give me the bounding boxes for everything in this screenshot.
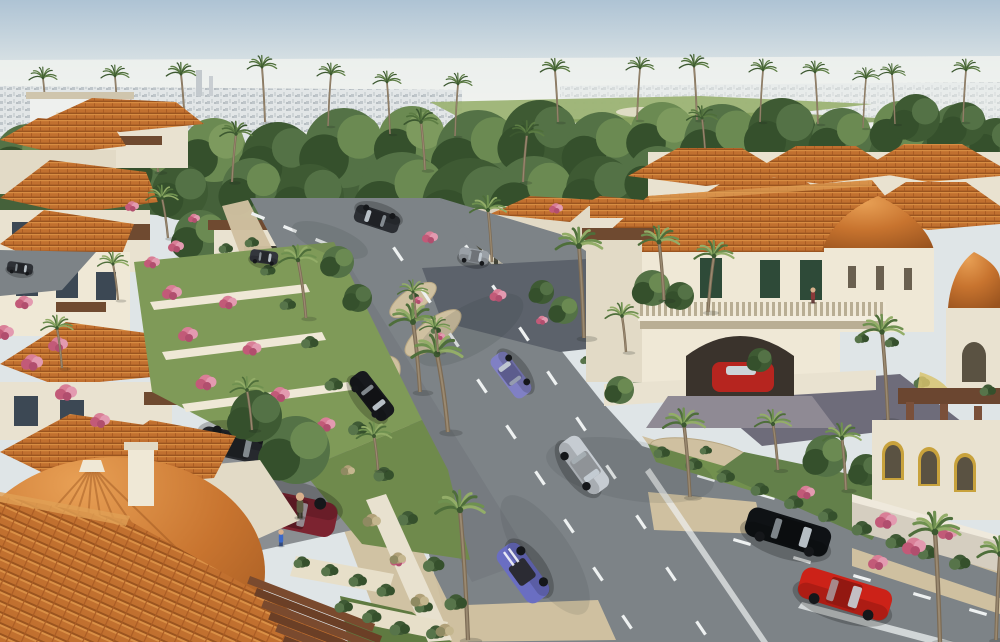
right-arch-window-1: [885, 445, 901, 478]
bougainvillea-bloom: [249, 348, 257, 356]
shrub-b: [751, 486, 761, 496]
palm-shadow: [413, 390, 434, 396]
tree-light: [335, 249, 353, 267]
person-shadow: [277, 545, 284, 548]
palm-core: [114, 75, 117, 78]
palm-core: [55, 326, 58, 329]
palm-core: [657, 240, 662, 245]
palm-core: [486, 208, 490, 212]
shrub-b: [362, 613, 372, 623]
shrub-b: [852, 525, 863, 536]
right-arch-window-3: [957, 457, 973, 490]
shrub-c: [662, 449, 670, 457]
shrub-b: [717, 473, 727, 483]
shrub-c: [398, 555, 406, 563]
palm-core: [762, 69, 765, 72]
bougainvillea-bloom: [875, 562, 883, 570]
shrub-b: [390, 625, 401, 636]
palm-shadow: [249, 429, 262, 433]
left-villa-5-awning: [56, 302, 106, 312]
palm-shadow: [389, 134, 398, 137]
palm-core: [814, 71, 817, 74]
shrub-b: [377, 587, 387, 597]
palm-shadow: [703, 311, 719, 316]
shrub-c: [288, 301, 296, 309]
shrub-c: [420, 596, 429, 605]
city-tower-a: [196, 70, 202, 96]
bougainvillea-bloom: [21, 302, 28, 309]
palm-core: [457, 83, 460, 86]
palm-core: [386, 81, 389, 84]
shrub-c: [862, 335, 869, 342]
shrub-c: [386, 586, 395, 595]
palm-core: [932, 529, 939, 536]
big-villa-shutter-window-2: [760, 260, 780, 298]
palm-core: [525, 132, 529, 136]
shrub-b: [818, 512, 828, 522]
palm-frond: [842, 436, 861, 440]
shrub-b: [245, 240, 253, 248]
palm-core: [419, 120, 423, 124]
shrub-c: [862, 524, 872, 534]
palm-core: [681, 422, 686, 427]
palm-core: [433, 326, 436, 329]
bougainvillea-bloom: [225, 302, 232, 309]
bougainvillea-bloom: [150, 262, 156, 268]
shrub-b: [980, 387, 989, 396]
bougainvillea-bloom: [910, 546, 920, 556]
palm-core: [693, 65, 696, 68]
shrub-c: [358, 576, 367, 585]
palm-shadow: [759, 122, 768, 125]
person-head: [278, 529, 283, 534]
shrub-c: [456, 598, 467, 609]
palm-shadow: [841, 489, 856, 493]
shrub-b: [784, 499, 794, 509]
palm-core: [160, 196, 163, 199]
palm-core: [879, 329, 884, 334]
shrub-b: [341, 468, 349, 476]
palm-shadow: [374, 469, 388, 473]
palm-core: [891, 73, 893, 75]
shrub-c: [434, 560, 445, 571]
person-body: [279, 534, 283, 543]
palm-core: [576, 243, 582, 249]
shrub-b: [426, 629, 436, 639]
shrub-b: [855, 336, 863, 344]
shrub-c: [694, 461, 703, 470]
bougainvillea-bloom: [417, 300, 421, 304]
chimney: [128, 446, 154, 506]
shrub-c: [828, 511, 838, 521]
palm-core: [965, 69, 968, 72]
palm-shadow: [422, 169, 435, 173]
palm-core: [180, 73, 183, 76]
palm-core: [296, 258, 300, 262]
palm-shadow: [636, 120, 645, 123]
tree-light: [252, 394, 281, 423]
shrub-c: [794, 498, 804, 508]
palm-shadow: [774, 469, 788, 473]
palm-core: [411, 290, 414, 293]
palm-core: [840, 436, 844, 440]
palm-shadow: [439, 430, 462, 437]
shrub-c: [372, 612, 382, 622]
shrub-b: [654, 449, 663, 458]
shrub-b: [411, 597, 421, 607]
palm-core: [245, 388, 249, 392]
shrub-c: [302, 559, 310, 567]
bougainvillea-bloom: [945, 532, 953, 540]
bougainvillea-bloom: [169, 292, 177, 300]
tree-light: [758, 350, 771, 363]
bougainvillea-bloom: [540, 320, 545, 325]
shrub-c: [445, 626, 454, 635]
bougainvillea-bloom: [428, 237, 434, 243]
shrub-c: [334, 380, 343, 389]
shrub-c: [988, 387, 996, 395]
palm-shadow: [894, 124, 902, 126]
cone-finial: [79, 460, 105, 472]
palm-shadow: [454, 136, 463, 139]
bougainvillea-bloom: [29, 362, 38, 371]
palm-core: [330, 73, 333, 76]
palm-shadow: [520, 181, 533, 185]
shrub-b: [949, 558, 961, 570]
balcony-edge: [638, 316, 888, 321]
tower-slit-window-1: [848, 266, 856, 288]
palm-core: [42, 77, 45, 80]
shrub-c: [892, 339, 899, 346]
right-arch-window-2: [921, 451, 937, 484]
palm-core: [712, 254, 717, 259]
palm-shadow: [623, 351, 636, 355]
palm-shadow: [962, 122, 971, 125]
shrub-c: [706, 448, 712, 454]
tree-light: [247, 163, 280, 196]
balcony-shadow: [640, 321, 886, 329]
shrub: [885, 337, 899, 347]
shrub-c: [372, 516, 381, 525]
left-villa-2-awning: [118, 136, 162, 145]
shrub-c: [310, 339, 319, 348]
bougainvillea-bloom: [554, 208, 560, 214]
tree-light: [562, 298, 577, 313]
shrub-b: [294, 559, 303, 568]
palm-core: [865, 77, 867, 79]
tree-light: [175, 169, 206, 200]
tree-light: [540, 282, 553, 295]
palm-core: [620, 314, 624, 318]
bougainvillea-bloom: [63, 392, 72, 401]
bougainvillea-bloom: [185, 334, 193, 342]
palm-shadow: [577, 336, 598, 342]
shrub-c: [344, 602, 353, 611]
shrub-b: [363, 517, 373, 527]
person-body: [297, 500, 304, 513]
bougainvillea-bloom: [130, 206, 136, 212]
shrub-c: [400, 624, 410, 634]
shrub-c: [226, 245, 233, 252]
bougainvillea-bloom: [97, 420, 105, 428]
palm-shadow: [155, 171, 168, 175]
palm-core: [457, 507, 464, 514]
shrub-c: [252, 239, 259, 246]
city-tower-b: [209, 76, 213, 96]
shrub-b: [325, 381, 335, 391]
bougainvillea-bloom: [277, 394, 285, 402]
palm-shadow: [488, 261, 502, 265]
palm-core: [261, 66, 264, 69]
tree-light: [356, 286, 371, 301]
shrub-c: [960, 558, 971, 569]
bougainvillea-bloom: [174, 246, 180, 252]
shrub-c: [760, 485, 769, 494]
tower2-door: [962, 342, 986, 382]
shrub-c: [330, 567, 339, 576]
bougainvillea-bloom: [495, 295, 502, 302]
left-villa-5-window-c: [96, 272, 116, 300]
shrub-c: [408, 514, 418, 524]
bougainvillea-bloom: [203, 382, 211, 390]
palm-shadow: [862, 128, 870, 130]
palm-shadow: [817, 124, 826, 127]
big-villa-wing: [586, 236, 642, 382]
shrub-b: [423, 560, 435, 572]
left-villa-6-window-a: [14, 396, 38, 426]
shrub-b: [436, 627, 446, 637]
palm-shadow: [327, 126, 336, 129]
palm-core: [554, 69, 557, 72]
shrub-b: [580, 358, 586, 364]
tower-slit-window-2: [876, 266, 884, 290]
shrub-c: [726, 472, 735, 481]
person-shadow: [294, 516, 305, 520]
shrub-b: [280, 301, 289, 310]
shrub-b: [885, 340, 893, 348]
tree-light: [776, 104, 813, 141]
shrub-b: [301, 339, 310, 348]
palm-core: [639, 67, 642, 70]
tree-light: [290, 422, 327, 459]
shrub-b: [349, 577, 359, 587]
shrub-b: [390, 555, 399, 564]
shrub-b: [886, 538, 897, 549]
shrub-b: [335, 603, 345, 613]
person-shadow: [809, 302, 816, 305]
palm-core: [771, 422, 775, 426]
palm-core: [111, 262, 114, 265]
bougainvillea-bloom: [439, 336, 443, 340]
shrub-b: [219, 246, 227, 254]
person-head: [296, 493, 304, 501]
bougainvillea-bloom: [803, 492, 810, 499]
bougainvillea-bloom: [192, 218, 197, 223]
shrub-b: [700, 448, 707, 455]
palm-core: [372, 434, 376, 438]
shrub-c: [348, 467, 355, 474]
tree-light: [678, 284, 693, 299]
shrub-b: [348, 425, 358, 435]
person-body: [811, 292, 815, 300]
tower2-cone: [948, 252, 1000, 308]
palm-shadow: [684, 495, 702, 500]
palm-core: [700, 116, 703, 119]
person-head: [810, 287, 815, 292]
palm-core: [234, 132, 237, 135]
shrub-b: [321, 567, 330, 576]
scene-canvas: [0, 0, 1000, 642]
bougainvillea-bloom: [1, 332, 9, 340]
tree: [802, 435, 847, 477]
palm-shadow: [658, 299, 675, 304]
palm-shadow: [301, 317, 316, 321]
shrub-b: [444, 598, 456, 610]
tower-slit-window-3: [904, 268, 912, 290]
aerial-villa-community-render: [0, 0, 1000, 642]
left-villa-1-roofline: [26, 92, 134, 99]
tree-light: [912, 98, 938, 124]
chimney-cap: [124, 442, 158, 450]
tree-light: [649, 273, 669, 293]
bougainvillea-bloom: [883, 520, 892, 529]
tree-light: [618, 378, 633, 393]
